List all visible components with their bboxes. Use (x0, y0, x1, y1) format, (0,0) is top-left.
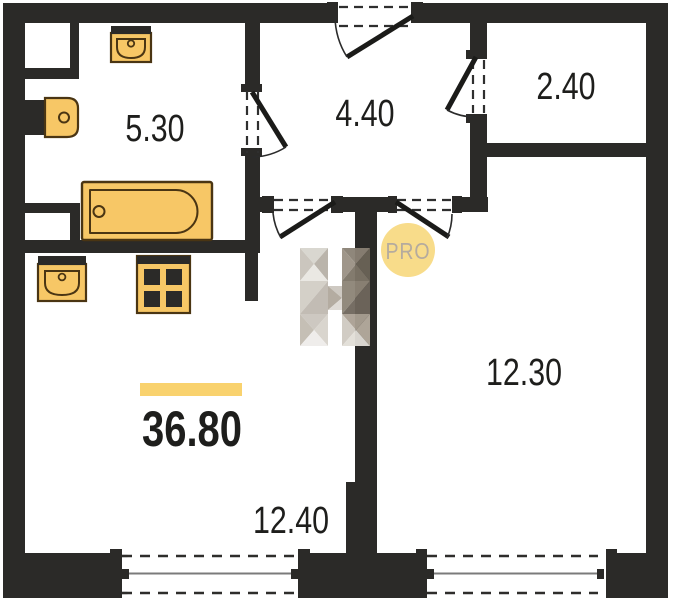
closet-door (447, 57, 484, 117)
bathtub-icon (82, 182, 212, 240)
total-area-accent-bar (140, 383, 242, 396)
toilet-icon (25, 98, 78, 137)
stove-icon (137, 256, 190, 313)
room-area-label-hallway: 4.40 (285, 95, 445, 133)
room-area-label-closet: 2.40 (486, 68, 646, 106)
kitchen-sink-icon (38, 256, 86, 301)
window-living-room (122, 556, 298, 593)
window-bedroom (427, 556, 598, 593)
total-area-label: 36.80 (112, 404, 272, 454)
living-room-door (273, 200, 335, 238)
room-area-label-living-room: 12.40 (211, 502, 371, 540)
bathroom-door (247, 91, 286, 157)
wash-basin-icon (111, 26, 151, 62)
entrance-door (335, 7, 413, 57)
room-area-label-bedroom: 12.30 (444, 354, 604, 392)
floor-plan: 5.30 4.40 2.40 12.30 12.40 36.80 PRO (0, 0, 673, 600)
pro-badge-text: PRO (323, 240, 493, 263)
room-area-label-bathroom: 5.30 (75, 110, 235, 148)
